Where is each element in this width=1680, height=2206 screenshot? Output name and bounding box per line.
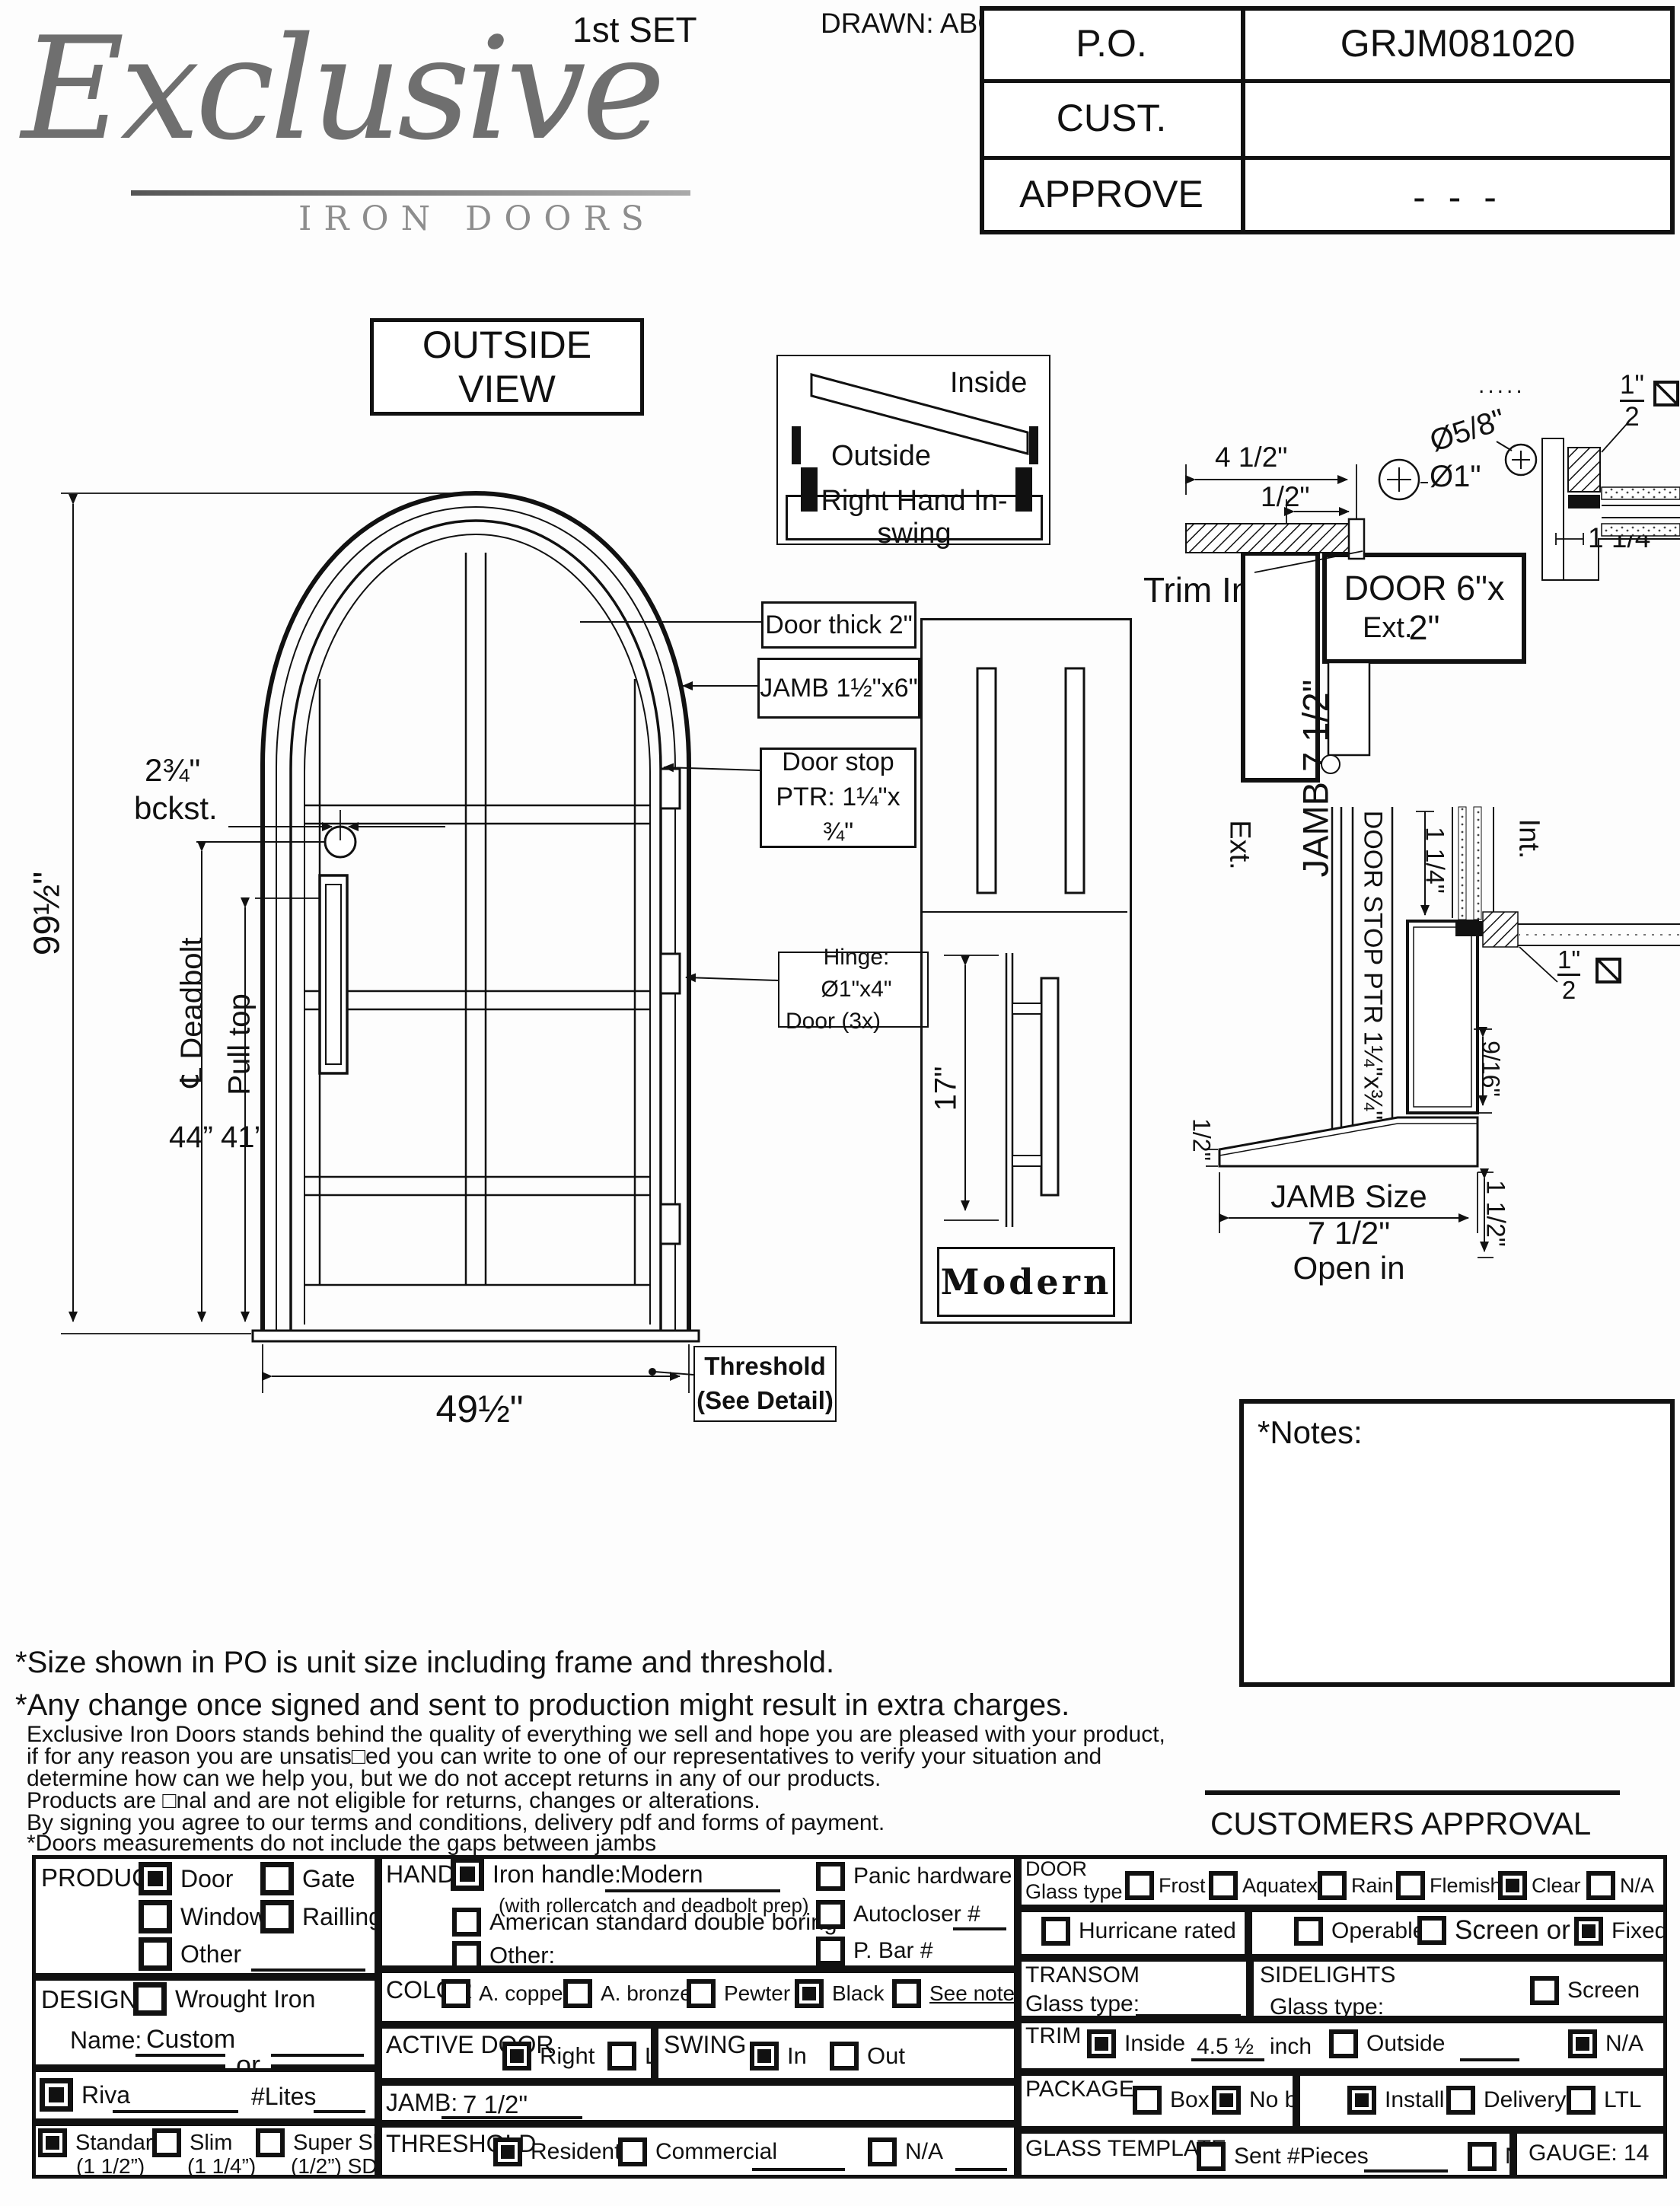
color-pewter-checkbox[interactable] <box>687 1979 716 2008</box>
lites-label: #Lites <box>251 2083 316 2111</box>
active-left-checkbox[interactable] <box>607 2042 636 2071</box>
panic-hardware-label: Panic hardware <box>853 1863 1012 1889</box>
handle-detail-lines <box>920 668 1127 1227</box>
product-railing-checkbox[interactable] <box>260 1900 294 1933</box>
trim-inside-checkbox[interactable] <box>1087 2029 1116 2058</box>
riva-checkbox[interactable] <box>40 2078 73 2112</box>
swing-out-label: Out <box>867 2042 905 2070</box>
pbar-input-line[interactable] <box>910 1965 971 1969</box>
sent-pieces-label: Sent #Pieces <box>1234 2144 1369 2169</box>
glass-rain-label: Rain <box>1351 1874 1394 1898</box>
callout-leaders <box>580 622 778 1376</box>
sidelights-screen-checkbox[interactable] <box>1530 1976 1559 2005</box>
design-title: DESIGN: <box>41 1985 145 2014</box>
design-wrought-checkbox[interactable] <box>133 1982 167 2016</box>
threshold-na-line[interactable] <box>955 2168 1007 2171</box>
ltl-checkbox[interactable] <box>1567 2086 1596 2115</box>
panic-hardware-checkbox[interactable] <box>816 1862 845 1891</box>
ltl-label: LTL <box>1604 2087 1641 2113</box>
product-railing-label: Railling <box>302 1903 382 1931</box>
template-na-checkbox[interactable] <box>1468 2142 1497 2171</box>
glass-na-label: N/A <box>1620 1874 1654 1898</box>
trim-na-label: N/A <box>1605 2031 1643 2057</box>
color-copper-label: A. copper <box>479 1981 570 2006</box>
color-see-notes-checkbox[interactable] <box>892 1979 921 2008</box>
screen-or-label: Screen or <box>1455 1915 1570 1946</box>
transom-glass-label: Glass type: <box>1025 1991 1140 2017</box>
product-other-checkbox[interactable] <box>139 1937 172 1971</box>
trim-outside-label: Outside <box>1366 2031 1445 2057</box>
operable-label: Operable <box>1331 1918 1425 1944</box>
jamb-row-value[interactable]: 7 1/2" <box>463 2090 528 2119</box>
install-label: Install <box>1385 2087 1444 2113</box>
sidelights-glass-label: Glass type: <box>1270 1994 1384 2020</box>
hinge-mark-3 <box>661 1204 680 1244</box>
sent-pieces-line[interactable] <box>1364 2169 1448 2173</box>
trim-na-checkbox[interactable] <box>1568 2029 1597 2058</box>
transom-title: TRANSOM <box>1025 1962 1140 1988</box>
glass-clear-checkbox[interactable] <box>1498 1871 1527 1900</box>
product-door-label: Door <box>180 1865 233 1893</box>
autocloser-checkbox[interactable] <box>816 1900 845 1929</box>
color-copper-checkbox[interactable] <box>442 1979 470 2008</box>
trim-outside-checkbox[interactable] <box>1329 2029 1358 2058</box>
riva-label: Riva <box>81 2081 130 2109</box>
lites-input-line[interactable] <box>314 2110 365 2113</box>
delivery-label: Delivery <box>1484 2087 1566 2113</box>
operable-checkbox[interactable] <box>1294 1917 1323 1946</box>
package-box-checkbox[interactable] <box>1133 2086 1162 2115</box>
swing-out-checkbox[interactable] <box>830 2042 859 2071</box>
product-gate-label: Gate <box>302 1865 355 1893</box>
install-checkbox[interactable] <box>1347 2086 1376 2115</box>
color-bronze-label: A. bronze <box>601 1981 692 2006</box>
product-door-checkbox[interactable] <box>139 1862 172 1895</box>
color-black-label: Black <box>832 1981 884 2006</box>
door-elevation <box>196 493 699 1341</box>
jamb-row-title: JAMB: <box>386 2089 457 2117</box>
trim-outside-line[interactable] <box>1460 2058 1519 2061</box>
handle-other-label: Other: <box>489 1942 555 1969</box>
hurricane-checkbox[interactable] <box>1041 1917 1070 1946</box>
jamb-input-line[interactable] <box>442 2116 582 2119</box>
iron-handle-checkbox[interactable] <box>451 1857 484 1891</box>
trim-inside-unit: inch <box>1270 2034 1312 2060</box>
trim-title: TRIM <box>1025 2023 1081 2049</box>
standard-checkbox[interactable] <box>38 2128 67 2157</box>
design-name-label: Name: <box>70 2026 142 2055</box>
trim-inside-value[interactable]: 4.5 ½ <box>1197 2034 1254 2060</box>
glass-rain-checkbox[interactable] <box>1318 1871 1347 1900</box>
sidelights-title: SIDELIGHTS <box>1260 1962 1395 1988</box>
fixed-checkbox[interactable] <box>1574 1917 1603 1946</box>
slim-label: Slim <box>190 2131 232 2156</box>
threshold-commercial-checkbox[interactable] <box>618 2137 647 2166</box>
fixed-label: Fixed <box>1611 1918 1667 1944</box>
product-window-checkbox[interactable] <box>139 1900 172 1933</box>
swing-in-label: In <box>787 2042 807 2070</box>
delivery-checkbox[interactable] <box>1446 2086 1475 2115</box>
american-boring-checkbox[interactable] <box>452 1908 481 1937</box>
customers-approval-label: CUSTOMERS APPROVAL <box>1210 1806 1591 1842</box>
design-name-value[interactable]: Custom <box>146 2025 235 2055</box>
glass-aquatex-checkbox[interactable] <box>1209 1871 1238 1900</box>
design-wrought-label: Wrought Iron <box>175 1985 315 2013</box>
iron-handle-value[interactable]: Modern <box>620 1860 703 1889</box>
glass-na-checkbox[interactable] <box>1586 1871 1615 1900</box>
autocloser-label: Autocloser # <box>853 1902 980 1927</box>
hinge-mark-2 <box>661 954 680 993</box>
swing-title: SWING <box>664 2031 746 2059</box>
hinge-mark-1 <box>661 769 680 808</box>
threshold-commercial-label: Commercial <box>655 2139 777 2165</box>
product-other-input-line[interactable] <box>251 1969 365 1972</box>
glass-frost-checkbox[interactable] <box>1125 1871 1154 1900</box>
threshold-na-label: N/A <box>905 2139 943 2165</box>
handle-other-checkbox[interactable] <box>452 1941 481 1970</box>
standard-sub: (1 1/2”) <box>76 2154 145 2179</box>
threshold-residential-checkbox[interactable] <box>493 2137 522 2166</box>
active-right-label: Right <box>540 2042 595 2070</box>
color-pewter-label: Pewter <box>724 1981 790 2006</box>
door-shop-drawing-page: Exclusive IRON DOORS 1st SET DRAWN: ABG … <box>0 0 1680 2206</box>
autocloser-input-line[interactable] <box>953 1927 1006 1930</box>
glass-flemish-label: Flemish <box>1430 1874 1502 1898</box>
threshold-detail-lines <box>1206 807 1680 1258</box>
door-pull-handle <box>320 875 347 1073</box>
slim-checkbox[interactable] <box>152 2128 181 2157</box>
glass-aquatex-label: Aquatex <box>1242 1874 1318 1898</box>
product-other-label: Other <box>180 1940 241 1969</box>
sent-pieces-checkbox[interactable] <box>1197 2142 1226 2171</box>
gauge-value: GAUGE: 14 <box>1529 2141 1649 2166</box>
trim-inside-line[interactable] <box>1191 2058 1264 2061</box>
glass-clear-label: Clear <box>1532 1874 1581 1898</box>
pbar-label: P. Bar # <box>853 1938 933 1964</box>
riva-input-line[interactable] <box>113 2110 238 2113</box>
pbar-checkbox[interactable] <box>816 1937 845 1965</box>
swing-leaf <box>792 375 1038 512</box>
door-glass-subtitle: Glass type <box>1025 1880 1123 1904</box>
iron-handle-input-line[interactable] <box>605 1889 780 1892</box>
package-nobox-checkbox[interactable] <box>1212 2086 1241 2115</box>
super-slim-checkbox[interactable] <box>256 2128 285 2157</box>
package-title: PACKAGE <box>1025 2077 1134 2102</box>
dimension-lines <box>61 493 689 1393</box>
color-black-checkbox[interactable] <box>795 1979 824 2008</box>
hurricane-label: Hurricane rated <box>1079 1918 1236 1944</box>
sidelights-screen-label: Screen <box>1567 1978 1640 2004</box>
slim-sub: (1 1/4”) <box>187 2154 256 2179</box>
drawing-linework <box>0 0 1680 1751</box>
disclaimer-small-6: *Doors measurements do not include the g… <box>27 1831 656 1857</box>
product-window-label: Window <box>180 1903 267 1931</box>
head-detail-lines <box>1186 423 1680 773</box>
package-box-label: Box <box>1170 2087 1210 2113</box>
transom-glass-line[interactable] <box>1136 2014 1241 2017</box>
swing-in-checkbox[interactable] <box>750 2042 779 2071</box>
door-glass-title: DOOR <box>1025 1857 1087 1881</box>
american-boring-label: American standard double boring <box>489 1908 837 1936</box>
threshold-commercial-line[interactable] <box>752 2168 845 2171</box>
color-bronze-checkbox[interactable] <box>563 1979 592 2008</box>
iron-handle-label: Iron handle: <box>493 1860 621 1889</box>
super-slim-sub: (1/2”) SDL <box>291 2154 389 2179</box>
product-gate-checkbox[interactable] <box>260 1862 294 1895</box>
screen-or-checkbox[interactable] <box>1417 1916 1446 1945</box>
trim-inside-label: Inside <box>1124 2031 1185 2057</box>
active-right-checkbox[interactable] <box>502 2042 531 2071</box>
signature-line[interactable] <box>1205 1790 1620 1795</box>
threshold-na-checkbox[interactable] <box>868 2137 897 2166</box>
glass-flemish-checkbox[interactable] <box>1396 1871 1425 1900</box>
glass-frost-label: Frost <box>1159 1874 1206 1898</box>
